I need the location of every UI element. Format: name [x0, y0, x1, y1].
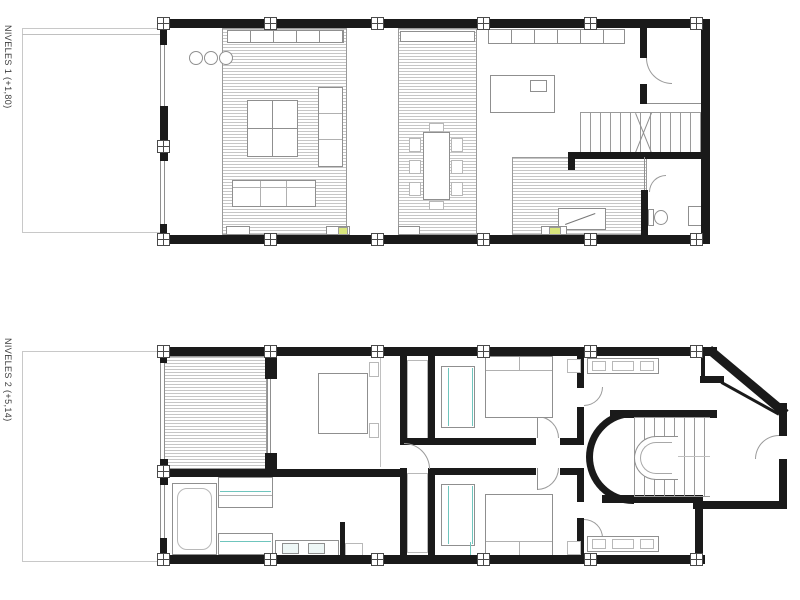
partition-line [380, 357, 381, 467]
column-marker [477, 345, 490, 358]
closet-rail [472, 368, 473, 426]
wall-segment [340, 522, 345, 557]
floor-plan-level-2 [0, 0, 800, 600]
stair-newel-rail [640, 442, 672, 474]
column-marker [157, 465, 170, 478]
wardrobe [218, 477, 273, 508]
wall-segment [577, 407, 584, 445]
wall-segment [693, 501, 787, 509]
nightstand [369, 423, 379, 438]
door-arc [404, 443, 430, 469]
exterior-wall-bottom [160, 555, 705, 564]
column-marker [371, 345, 384, 358]
column-marker [157, 553, 170, 566]
bed [485, 356, 553, 418]
nightstand [567, 541, 581, 555]
door-leaf [537, 416, 538, 438]
closet [441, 366, 475, 428]
closet-rail [220, 541, 271, 542]
bed [318, 373, 368, 434]
glass-wall [267, 379, 271, 456]
wall-segment [577, 468, 584, 502]
closet-rail [472, 486, 473, 544]
dresser-drawer [592, 539, 606, 549]
dresser-drawer [612, 361, 634, 371]
dresser-drawer [592, 361, 606, 371]
closet [407, 473, 428, 553]
column-marker [264, 553, 277, 566]
closet [441, 484, 475, 546]
bed [485, 494, 553, 556]
exterior-wall-right [779, 403, 787, 436]
closet-rail [448, 368, 449, 426]
sink [282, 543, 299, 554]
wall-segment [428, 355, 435, 445]
bathtub-basin [177, 488, 212, 550]
column-marker [264, 345, 277, 358]
column-marker [584, 553, 597, 566]
column-marker [690, 553, 703, 566]
corridor-wall [428, 468, 536, 475]
wall-segment [428, 468, 435, 556]
dresser-drawer [612, 539, 634, 549]
wall-segment [695, 501, 703, 561]
door-arc [584, 387, 603, 406]
stair-curved-wall [586, 410, 634, 504]
dresser-drawer [640, 539, 654, 549]
wardrobe [218, 533, 273, 555]
door-arc [755, 435, 779, 459]
corridor-wall [400, 438, 536, 445]
column-marker [371, 553, 384, 566]
door-arc [537, 416, 559, 438]
glass-facade [160, 355, 165, 556]
closet [407, 360, 428, 443]
sink [308, 543, 325, 554]
closet-rail [470, 542, 471, 556]
architectural-drawing: NIVELES 1 (+1,80) NIVELES 2 (+5,14) [0, 0, 800, 600]
wall-segment [160, 469, 405, 477]
terrace [22, 351, 161, 562]
column-marker [690, 345, 703, 358]
wall-segment [400, 468, 407, 556]
column-marker [584, 345, 597, 358]
deck-floor [163, 356, 267, 469]
nightstand [567, 359, 581, 373]
door-arc [537, 468, 559, 490]
column-marker [477, 553, 490, 566]
closet-rail [448, 486, 449, 544]
dresser-drawer [640, 361, 654, 371]
closet-rail [220, 491, 271, 492]
door-leaf [537, 468, 538, 490]
wall-segment [400, 355, 407, 445]
nightstand [369, 362, 379, 377]
wall-segment [265, 355, 277, 379]
exterior-wall-top [160, 347, 717, 356]
column-marker [157, 345, 170, 358]
